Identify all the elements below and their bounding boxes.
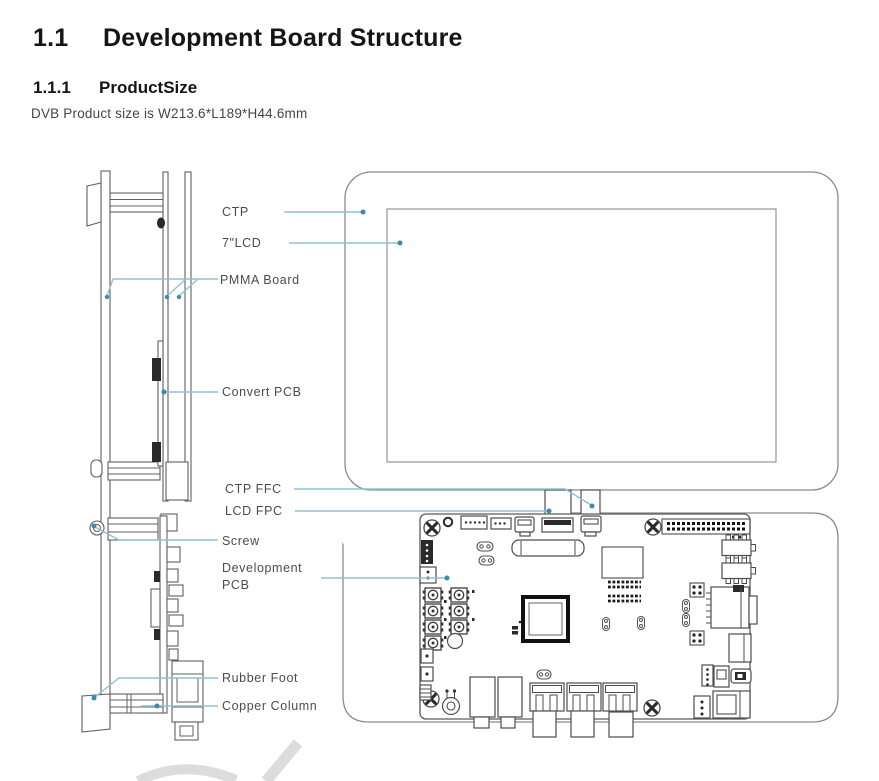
round-component <box>448 634 463 649</box>
label-development-pcb: PCB <box>222 578 250 592</box>
dual-pad <box>683 614 690 627</box>
usb-ports <box>530 683 637 737</box>
pcb-top-view <box>420 514 757 737</box>
pin-connector-2 <box>420 567 436 583</box>
jumper-block <box>690 631 704 645</box>
lcd-fpc-connector <box>542 518 573 532</box>
label-lcd-fpc: LCD FPC <box>225 504 283 518</box>
front-panel-view <box>345 172 838 490</box>
sd-card-slot <box>706 585 757 628</box>
side-rubber-foot <box>82 694 110 732</box>
pcb-screw-tl <box>424 520 440 536</box>
side-view <box>82 171 203 740</box>
side-ctp-glass <box>101 171 110 723</box>
lower-left-connectors <box>420 649 433 700</box>
label-pmma-board: PMMA Board <box>220 273 300 287</box>
slot-connector <box>512 540 584 556</box>
usb-otg-connector <box>729 634 751 662</box>
label-development: Development <box>222 561 302 575</box>
label-ctp: CTP <box>222 205 249 219</box>
dual-pad <box>638 617 645 630</box>
leader-pmma <box>105 279 218 299</box>
label-7lcd: 7"LCD <box>222 236 261 250</box>
side-convert-pcb <box>152 341 163 466</box>
dual-pad <box>683 600 690 613</box>
dual-pad <box>603 618 610 631</box>
leader-lcd-fpc <box>295 509 552 514</box>
manual-page: 1.1Development Board Structure 1.1.1Prod… <box>0 0 879 781</box>
board-structure-diagram: CTP 7"LCD PMMA Board Convert PCB CTP FFC… <box>0 0 879 781</box>
ctp-bezel <box>345 172 838 490</box>
label-screw: Screw <box>222 534 260 548</box>
label-ctp-ffc: CTP FFC <box>225 482 282 496</box>
callout-labels: CTP 7"LCD PMMA Board Convert PCB CTP FFC… <box>220 205 317 713</box>
label-copper-column: Copper Column <box>222 699 317 713</box>
pcb-screw-tr <box>645 519 661 535</box>
side-screw-dot <box>157 218 165 229</box>
mounting-hole <box>444 518 452 526</box>
label-convert-pcb: Convert PCB <box>222 385 302 399</box>
pcb-screw-br <box>644 700 660 716</box>
side-top-bracket <box>87 183 101 226</box>
jumper-block <box>690 583 704 597</box>
side-copper-column-bottom <box>110 694 163 713</box>
watermark <box>138 743 298 781</box>
side-copper-column-top <box>110 193 163 212</box>
side-pmma-plate-2 <box>185 172 191 501</box>
label-rubber-foot: Rubber Foot <box>222 671 298 685</box>
